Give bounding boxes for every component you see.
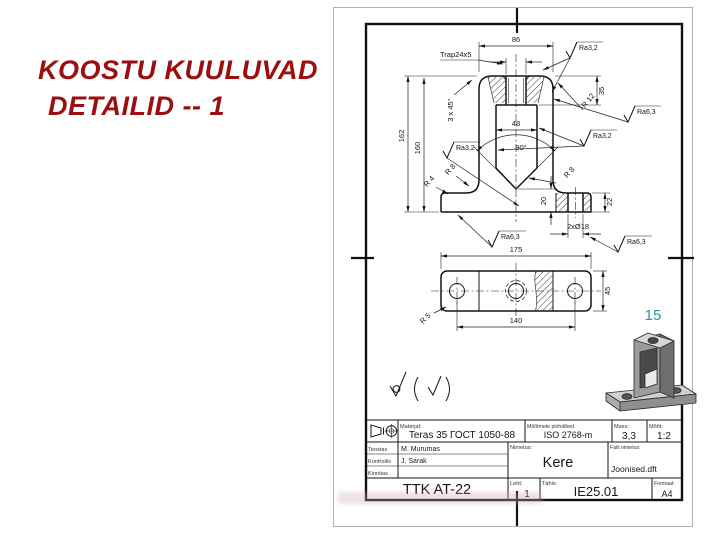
ra-top-label: Ra3,2 [579,45,598,52]
dim-90deg: 90° [515,143,526,152]
dim-48: 48 [512,119,520,128]
name-label: Nimetus: [510,445,533,451]
watermark [338,492,543,504]
made-label: Teostas [368,447,387,453]
dim-175: 175 [510,245,523,254]
page-number: 15 [645,307,662,324]
ra-left-label: Ra3,2 [456,145,475,152]
format-label: Formaat: [654,481,675,487]
dim-140: 140 [510,316,523,325]
approved-label: Kinnitas [368,471,388,477]
checked-value: J. Sarak [401,458,427,465]
code-label: Tähis: [542,481,558,487]
dim-45: 45 [603,287,612,295]
dim-35: 35 [597,87,606,95]
label-chamfer: 3 x 45° [446,98,455,121]
format-value: A4 [661,489,672,499]
ra-right-mid-label: Ra3,2 [593,133,612,140]
ra-right-upper-label: Ra6,3 [637,109,656,116]
technical-drawing: 86 Trap24x5 3 x 45° 162 160 35 [0,0,720,540]
material-value: Teras 35 ГОСТ 1050-88 [409,430,516,441]
code-value: IE25.01 [574,484,619,499]
scale-value: 1:2 [657,431,671,442]
dim-160: 160 [413,142,422,155]
sheet-label: Leht: [510,481,523,487]
ra-bottom-right-label: Ra6,3 [627,239,646,246]
dim-20: 20 [539,197,548,205]
scale-label: Mõõt: [649,424,663,430]
checked-label: Kontrollis [368,459,391,465]
name-value: Kere [543,455,574,471]
file-value: Joonised.dft [611,464,657,474]
mass-value: 3,3 [622,431,636,442]
file-label: Faili nimetus: [610,445,641,451]
dim-86: 86 [512,35,520,44]
mass-label: Mass: [614,424,629,430]
tolerance-value: ISO 2768-m [544,430,593,440]
slide: KOOSTU KUULUVAD DETAILID -- 1 [0,0,720,540]
dim-22: 22 [605,198,614,206]
dim-2xd18: 2xØ18 [567,222,589,231]
ra-bottom-left-label: Ra6,3 [501,234,520,241]
dim-162: 162 [397,130,406,143]
made-value: M. Murumas [401,446,440,453]
label-thread: Trap24x5 [440,50,471,59]
